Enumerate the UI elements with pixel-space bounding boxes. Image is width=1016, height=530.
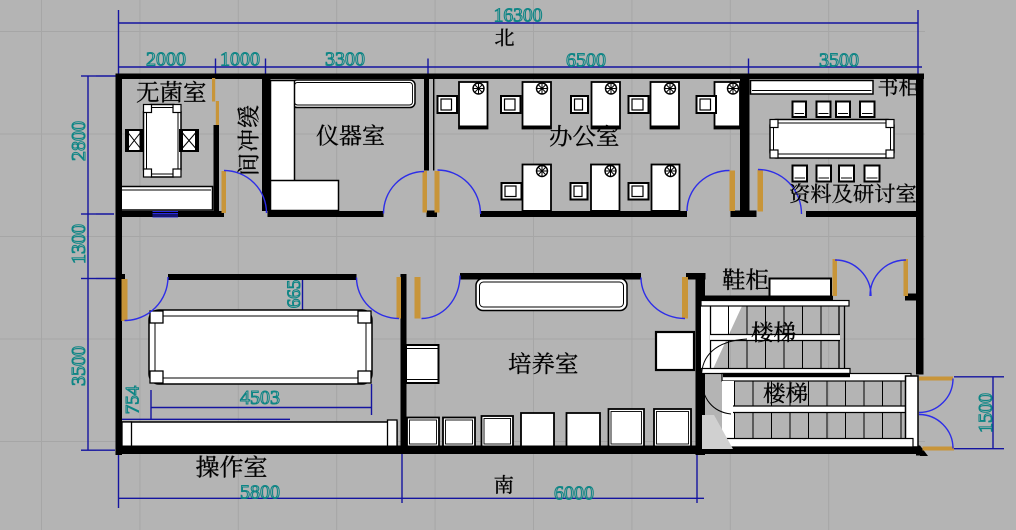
svg-text:1000: 1000: [220, 49, 260, 71]
svg-text:5800: 5800: [240, 482, 280, 504]
svg-text:4503: 4503: [240, 387, 280, 409]
svg-text:1500: 1500: [975, 393, 997, 433]
svg-text:754: 754: [123, 385, 144, 414]
svg-text:1300: 1300: [68, 224, 90, 264]
svg-text:3500: 3500: [68, 346, 90, 386]
svg-text:3500: 3500: [819, 50, 859, 72]
svg-text:2000: 2000: [146, 49, 186, 71]
svg-text:665: 665: [284, 280, 305, 309]
svg-text:6500: 6500: [566, 50, 606, 72]
svg-text:3300: 3300: [325, 49, 365, 71]
svg-text:2800: 2800: [68, 121, 90, 161]
svg-text:6000: 6000: [554, 483, 594, 505]
svg-text:16300: 16300: [494, 6, 543, 27]
